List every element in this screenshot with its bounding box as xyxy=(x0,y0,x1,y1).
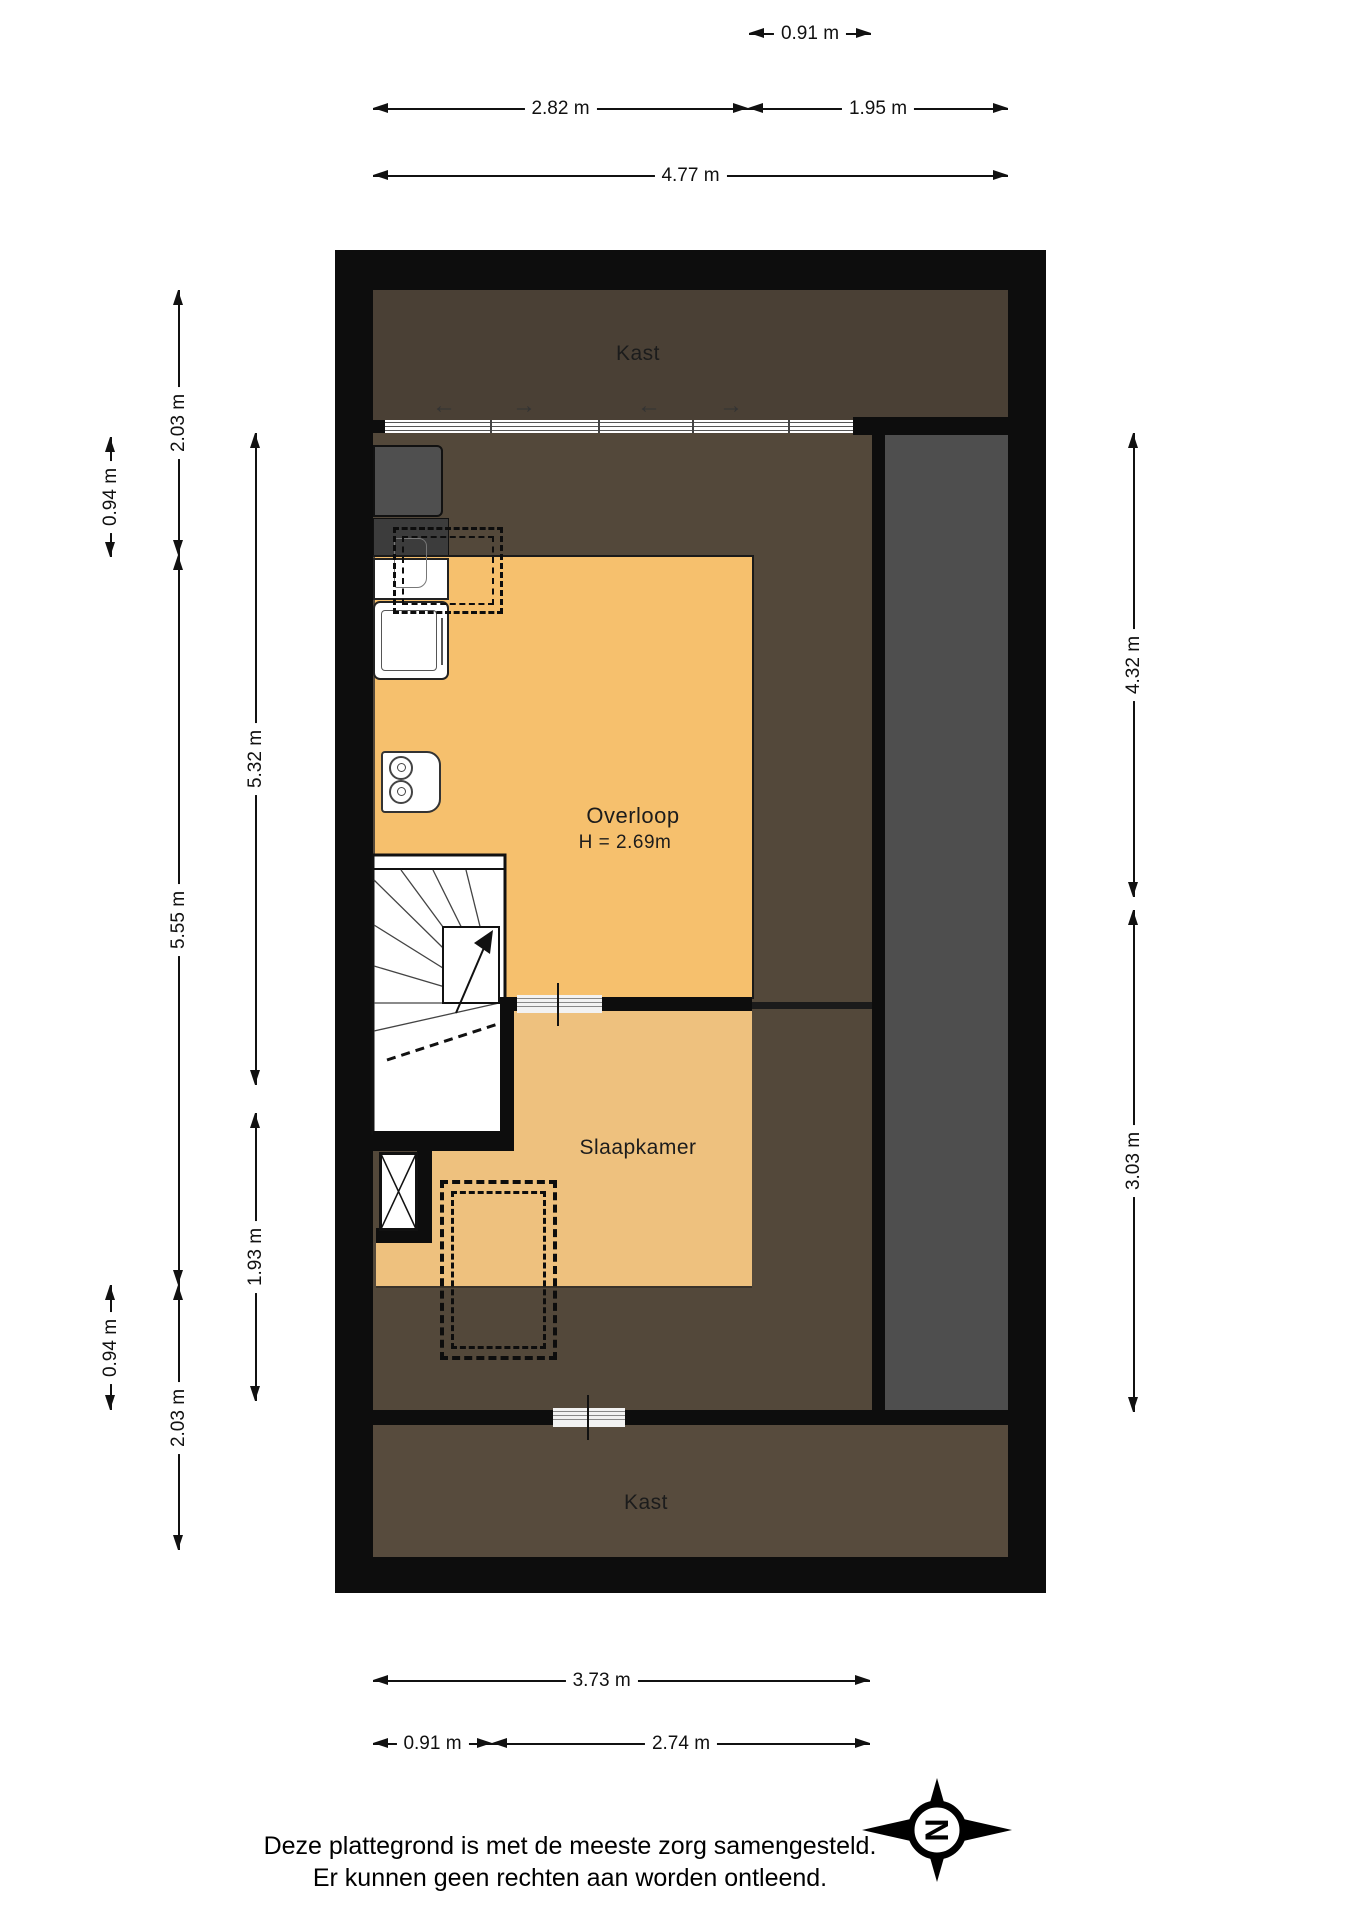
staircase xyxy=(371,853,516,1153)
sliding-door-divider xyxy=(692,420,694,433)
slide-left-icon: ← xyxy=(432,392,456,420)
room-label-kast-top: Kast xyxy=(616,342,660,366)
dim-right-432: 4.32 m xyxy=(1133,433,1135,897)
washing-machine-handle xyxy=(441,618,443,665)
door-tick-bottom xyxy=(587,1395,589,1440)
door-threshold-slaapkamer xyxy=(517,995,602,1013)
slide-left-icon: ← xyxy=(637,392,661,420)
closet-top-area xyxy=(373,290,1008,420)
disclaimer-line2: Er kunnen geen rechten aan worden ontlee… xyxy=(190,1864,950,1893)
room-label-overloop: Overloop xyxy=(586,803,679,829)
dim-bottom-373: 3.73 m xyxy=(373,1680,870,1682)
closet-bottom-area xyxy=(373,1425,1008,1557)
boiler xyxy=(381,751,441,813)
dim-top-091: 0.91 m xyxy=(749,33,871,35)
overloop-border-right xyxy=(752,555,754,999)
dim-left-532: 5.32 m xyxy=(255,433,257,1085)
sliding-door-track xyxy=(373,420,853,433)
dim-top-282: 2.82 m xyxy=(373,108,748,110)
floorplan-canvas: ← → ← → xyxy=(0,0,1358,1920)
dim-top-477: 4.77 m xyxy=(373,175,1008,177)
slide-right-icon: → xyxy=(719,392,743,420)
side-storage-area xyxy=(885,433,1008,1412)
dim-left-094-bottom: 0.94 m xyxy=(110,1285,112,1410)
boiler-dial-dot xyxy=(397,763,406,772)
cabinet xyxy=(373,445,443,517)
sliding-door-divider xyxy=(788,420,790,433)
dim-left-193: 1.93 m xyxy=(255,1113,257,1401)
track-end-cap xyxy=(373,420,385,433)
dim-bottom-091: 0.91 m xyxy=(373,1743,492,1745)
sliding-door-divider xyxy=(598,420,600,433)
slaapkamer-area xyxy=(376,1243,432,1287)
dim-left-203-bottom: 2.03 m xyxy=(178,1285,180,1550)
wall-divider-right xyxy=(602,997,752,1011)
roof-window-outline-upper-inner xyxy=(402,536,494,605)
roof-window-outline-lower-inner xyxy=(451,1191,546,1349)
slide-right-icon: → xyxy=(512,392,536,420)
wall-gray-west xyxy=(872,420,885,1412)
washing-machine-door xyxy=(381,610,437,671)
dim-top-195: 1.95 m xyxy=(748,108,1008,110)
dim-right-303: 3.03 m xyxy=(1133,910,1135,1412)
wall-divider-thin xyxy=(752,1002,872,1009)
duct-shaft xyxy=(379,1152,418,1231)
wall-bottom-inner xyxy=(373,1410,1008,1425)
sliding-door-divider xyxy=(490,420,492,433)
dim-bottom-274: 2.74 m xyxy=(492,1743,870,1745)
dim-left-203-top: 2.03 m xyxy=(178,290,180,555)
boiler-dial-dot xyxy=(397,787,406,796)
room-label-kast-bottom: Kast xyxy=(624,1491,668,1515)
room-label-overloop-height: H = 2.69m xyxy=(579,832,672,854)
dim-left-555: 5.55 m xyxy=(178,555,180,1285)
dim-left-094-top: 0.94 m xyxy=(110,437,112,557)
door-tick-slaapkamer xyxy=(557,983,559,1026)
wall-top-right xyxy=(853,417,1008,435)
door-threshold-bottom xyxy=(553,1408,625,1427)
room-label-slaapkamer: Slaapkamer xyxy=(579,1136,696,1160)
slaapkamer-border-bottom xyxy=(376,1286,752,1288)
disclaimer-line1: Deze plattegrond is met de meeste zorg s… xyxy=(190,1832,950,1861)
